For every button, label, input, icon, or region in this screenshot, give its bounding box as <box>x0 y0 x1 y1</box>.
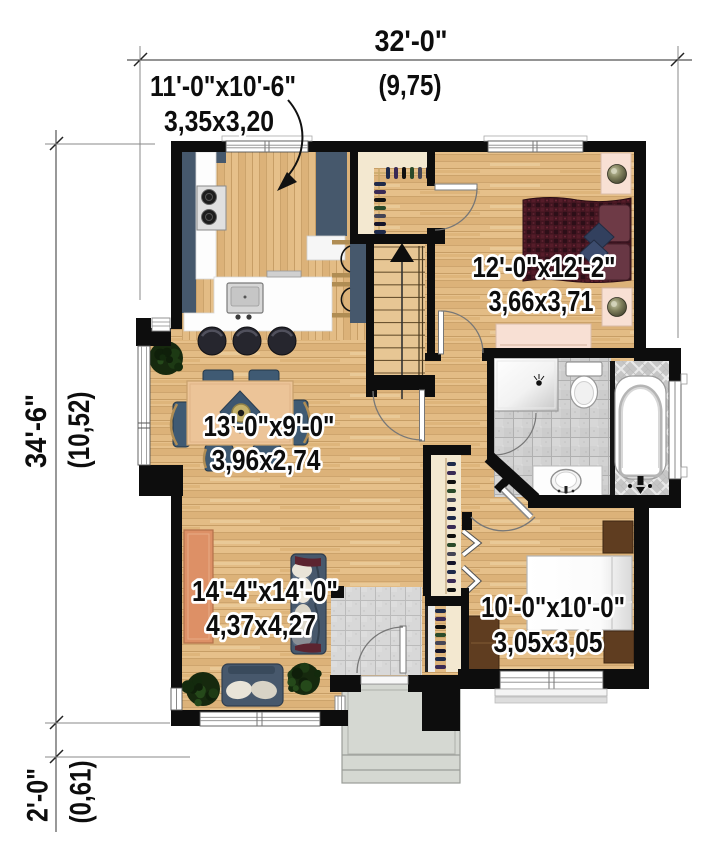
svg-text:34'-6": 34'-6" <box>20 394 53 468</box>
svg-text:32'-0": 32'-0" <box>375 25 448 58</box>
svg-text:3,05x3,05: 3,05x3,05 <box>494 627 603 659</box>
svg-text:10'-0"x10'-0": 10'-0"x10'-0" <box>481 592 625 624</box>
svg-text:3,66x3,71: 3,66x3,71 <box>489 286 594 318</box>
svg-text:12'-0"x12'-2": 12'-0"x12'-2" <box>473 252 616 284</box>
svg-text:(10,52): (10,52) <box>63 392 96 469</box>
svg-text:(0,61): (0,61) <box>65 761 98 824</box>
svg-text:2'-0": 2'-0" <box>22 768 55 822</box>
svg-text:3,96x2,74: 3,96x2,74 <box>212 445 321 477</box>
svg-text:(9,75): (9,75) <box>379 70 442 102</box>
svg-text:13'-0"x9'-0": 13'-0"x9'-0" <box>204 411 335 443</box>
svg-text:4,37x4,27: 4,37x4,27 <box>206 610 316 642</box>
svg-text:11'-0"x10'-6": 11'-0"x10'-6" <box>150 71 296 103</box>
svg-text:14'-4"x14'-0": 14'-4"x14'-0" <box>192 576 338 608</box>
svg-text:3,35x3,20: 3,35x3,20 <box>164 106 274 138</box>
